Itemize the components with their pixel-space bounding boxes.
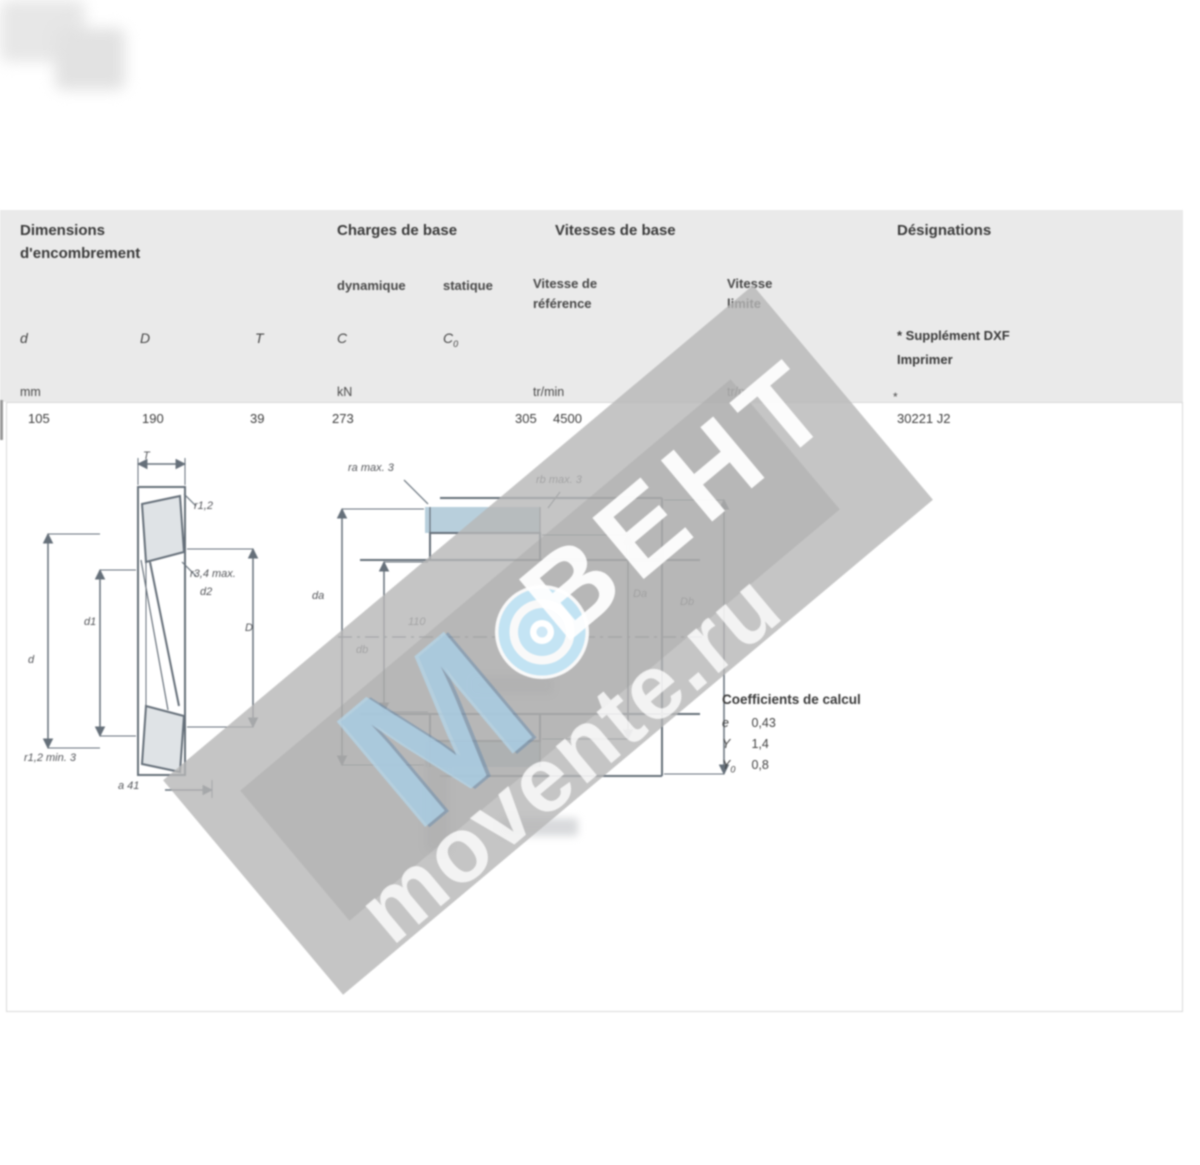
dim-label-a: a 41 [118,780,139,792]
unit-mm: mm [20,385,41,399]
subheader-ref-speed: Vitesse de [533,276,597,291]
symbol-C: C [337,330,347,346]
cell-bore-diameter: 105 [28,411,50,426]
page-content: Dimensions d'encombrement Charges de bas… [0,0,1200,1165]
dim-label-D: D [245,622,253,634]
cell-designation[interactable]: 30221 J2 [897,411,951,426]
dim-label-r12: r1,2 [194,500,213,512]
col-group-speeds: Vitesses de base [555,222,676,239]
col-group-dimensions-line2: d'encombrement [20,245,140,262]
cell-static-load: 305 [515,411,537,426]
dim-label-ra-max: ra max. 3 [348,462,394,474]
cell-dynamic-load: 273 [332,411,354,426]
dim-label-T: T [143,450,150,462]
factor-Y0: Y0 0,8 [722,758,769,775]
datasheet-page: Dimensions d'encombrement Charges de bas… [0,0,1200,1165]
dim-label-r34: r3,4 max. [190,568,236,580]
designation-footnote-mark: * [893,390,898,404]
subheader-dynamic: dynamique [337,278,406,293]
dxf-download-link[interactable]: * Supplément DXF [897,328,1010,343]
subheader-static: statique [443,278,493,293]
dim-label-d: d [28,654,34,666]
dim-label-d2: d2 [200,586,212,598]
symbol-d: d [20,330,28,346]
col-group-loads: Charges de base [337,222,457,239]
dim-label-d1: d1 [84,616,96,628]
symbol-C0: C0 [443,330,458,349]
cell-outside-diameter: 190 [142,411,164,426]
factor-e: e 0,43 [722,716,776,733]
col-group-designation: Désignations [897,222,991,239]
factor-Y: Y 1,4 [722,737,769,754]
scan-smudge [55,28,125,90]
symbol-T: T [255,330,264,346]
data-row-marker [0,400,5,440]
subheader-ref-speed-line2: référence [533,296,592,311]
cell-width: 39 [250,411,264,426]
print-link[interactable]: Imprimer [897,352,953,367]
unit-kn: kN [337,385,352,399]
cell-reference-speed: 4500 [553,411,582,426]
unit-rpm-ref: tr/min [533,385,564,399]
dim-label-da: da [312,590,324,602]
col-group-dimensions: Dimensions [20,222,105,239]
symbol-D: D [140,330,150,346]
dim-note-r-min: r1,2 min. 3 [24,752,76,764]
factors-title: Coefficients de calcul [722,692,861,707]
